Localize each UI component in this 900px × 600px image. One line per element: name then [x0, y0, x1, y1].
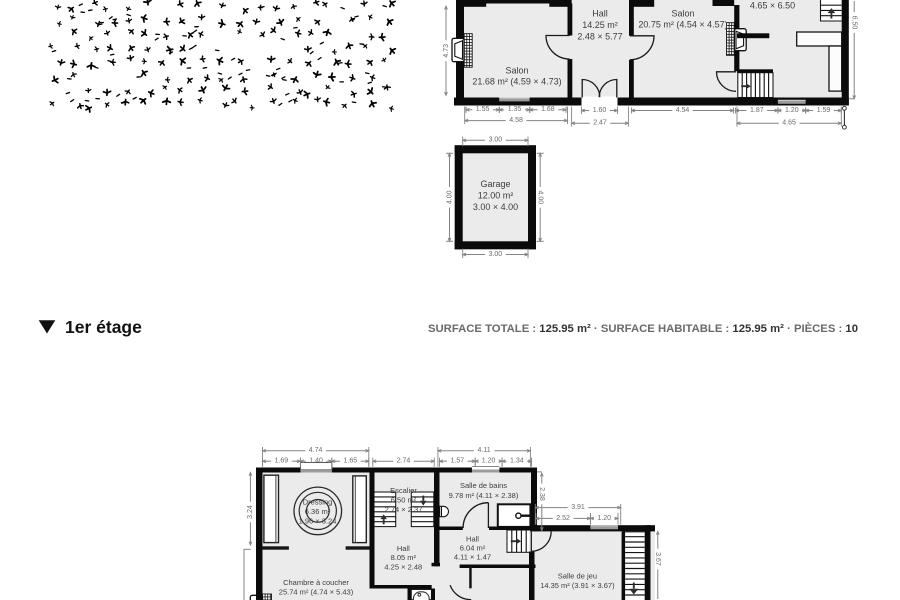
svg-text:2.47: 2.47 — [593, 120, 607, 127]
svg-text:1.20: 1.20 — [597, 515, 611, 522]
svg-text:4.58: 4.58 — [509, 117, 523, 124]
svg-text:Hall: Hall — [466, 534, 479, 543]
svg-text:8.05 m²: 8.05 m² — [391, 553, 417, 562]
svg-text:Chambre à coucher: Chambre à coucher — [283, 578, 349, 587]
svg-text:2.38: 2.38 — [538, 487, 545, 501]
svg-text:14.25 m²: 14.25 m² — [582, 20, 618, 30]
svg-text:4.74: 4.74 — [309, 447, 323, 454]
svg-text:Hall: Hall — [397, 544, 410, 553]
svg-text:1.96 × 3.24: 1.96 × 3.24 — [299, 516, 337, 525]
svg-text:4.00: 4.00 — [446, 190, 453, 204]
svg-text:3.91: 3.91 — [571, 504, 585, 511]
svg-text:3.00 × 4.00: 3.00 × 4.00 — [473, 202, 518, 212]
svg-text:4.00: 4.00 — [536, 190, 543, 204]
svg-text:6.04 m²: 6.04 m² — [460, 543, 486, 552]
svg-text:SURFACE TOTALE : 125.95 m² · S: SURFACE TOTALE : 125.95 m² · SURFACE HAB… — [428, 322, 858, 335]
svg-text:3.24: 3.24 — [247, 505, 254, 519]
svg-text:1.40: 1.40 — [309, 458, 323, 465]
svg-text:12.00 m²: 12.00 m² — [478, 190, 514, 200]
svg-text:20.75 m² (4.54 × 4.57): 20.75 m² (4.54 × 4.57) — [638, 19, 727, 29]
svg-text:Dressing: Dressing — [303, 497, 333, 506]
svg-text:6.36 m²: 6.36 m² — [305, 507, 331, 516]
svg-text:Salle de bains: Salle de bains — [460, 481, 507, 490]
svg-text:4.65 × 6.50: 4.65 × 6.50 — [750, 1, 795, 11]
svg-text:4.11: 4.11 — [478, 447, 491, 454]
svg-text:2.48 × 5.77: 2.48 × 5.77 — [577, 31, 622, 41]
svg-text:9.78 m² (4.11 × 2.38): 9.78 m² (4.11 × 2.38) — [449, 491, 519, 500]
svg-text:1.60: 1.60 — [593, 107, 607, 114]
svg-text:3.67: 3.67 — [654, 552, 661, 566]
svg-text:6.50: 6.50 — [850, 16, 857, 30]
svg-text:Salon: Salon — [671, 9, 694, 19]
svg-text:4.11 × 1.47: 4.11 × 1.47 — [454, 553, 491, 562]
svg-text:1.68: 1.68 — [541, 106, 555, 113]
svg-text:1.20: 1.20 — [482, 458, 496, 465]
svg-text:1.35: 1.35 — [508, 106, 522, 113]
svg-text:1.59: 1.59 — [817, 107, 831, 114]
svg-text:4.54: 4.54 — [676, 107, 690, 114]
svg-text:1.87: 1.87 — [750, 107, 764, 114]
svg-text:25.74 m² (4.74 × 5.43): 25.74 m² (4.74 × 5.43) — [279, 587, 354, 596]
svg-text:Salon: Salon — [505, 65, 528, 75]
svg-text:14.35 m² (3.91 × 3.67): 14.35 m² (3.91 × 3.67) — [540, 581, 615, 590]
svg-text:2.74 × 2.37: 2.74 × 2.37 — [385, 505, 423, 514]
svg-text:1.65: 1.65 — [343, 458, 357, 465]
svg-text:1.57: 1.57 — [451, 458, 465, 465]
svg-text:4.25 × 2.48: 4.25 × 2.48 — [384, 562, 422, 571]
svg-text:Salle de jeu: Salle de jeu — [558, 571, 597, 580]
svg-text:2.74: 2.74 — [397, 458, 411, 465]
svg-text:1er étage: 1er étage — [65, 317, 142, 337]
svg-text:1.20: 1.20 — [785, 107, 799, 114]
svg-text:6.50 m²: 6.50 m² — [391, 495, 417, 504]
svg-text:Hall: Hall — [592, 9, 608, 19]
svg-text:Escalier: Escalier — [390, 486, 417, 495]
svg-text:1.69: 1.69 — [275, 458, 289, 465]
svg-text:3.00: 3.00 — [489, 137, 503, 144]
svg-text:Garage: Garage — [480, 179, 510, 189]
svg-text:21.68 m² (4.59 × 4.73): 21.68 m² (4.59 × 4.73) — [472, 77, 561, 87]
svg-text:1.55: 1.55 — [476, 106, 490, 113]
svg-text:3.00: 3.00 — [489, 251, 503, 258]
svg-text:4.73: 4.73 — [443, 44, 450, 58]
svg-text:4.65: 4.65 — [782, 120, 796, 127]
svg-text:1.34: 1.34 — [510, 458, 524, 465]
svg-text:2.52: 2.52 — [556, 515, 570, 522]
